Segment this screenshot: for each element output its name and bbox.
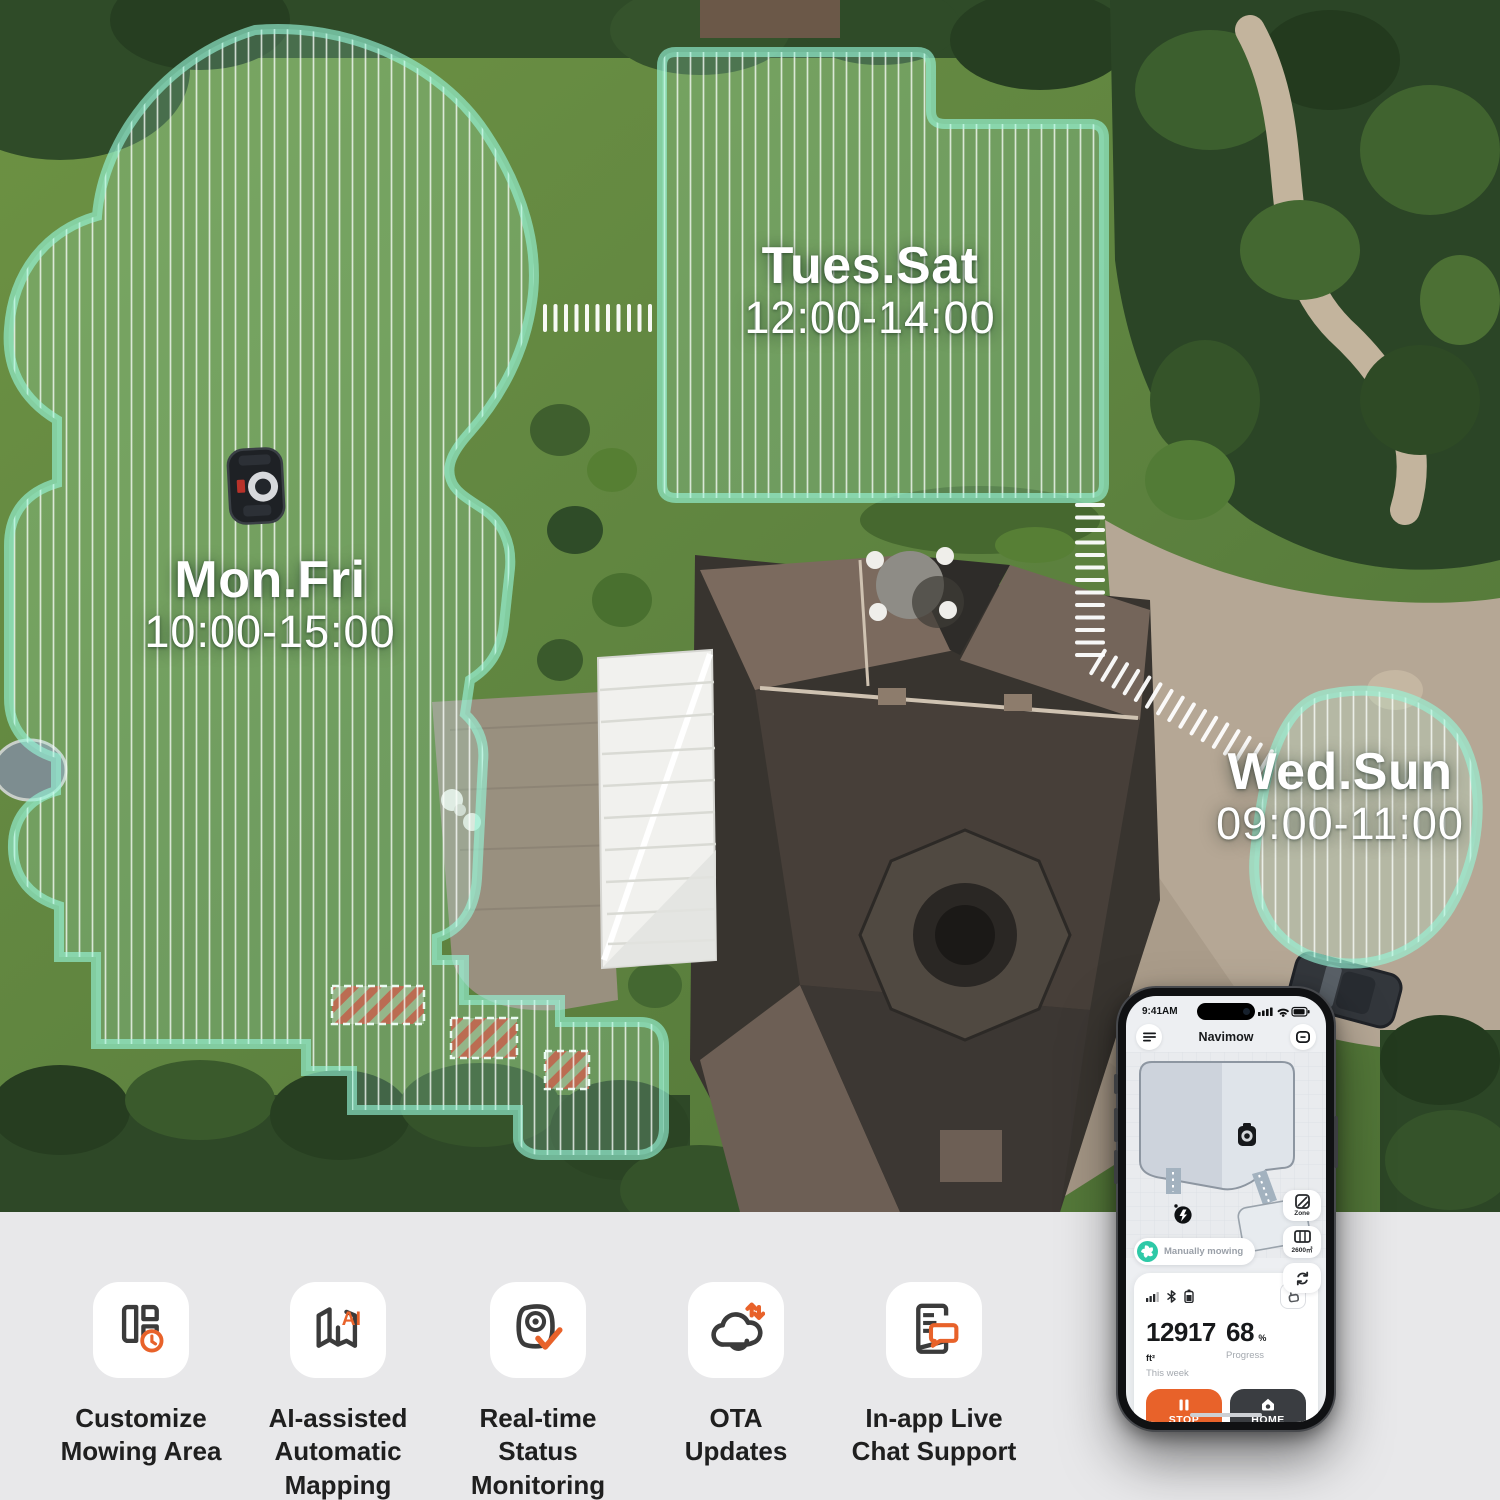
- feature-label: In-app Live Chat Support: [822, 1402, 1046, 1469]
- feature-label: Real-time Status Monitoring: [426, 1402, 650, 1500]
- feature-ota-updates: OTA Updates: [624, 1282, 848, 1469]
- progress-label: Progress: [1226, 1350, 1306, 1361]
- navimow-spinner-icon: [1137, 1241, 1158, 1262]
- stats-row: 12917 ft² This week 68 % Progress: [1146, 1317, 1306, 1379]
- wifi-icon: [1279, 1010, 1288, 1014]
- cloud-arrows-icon: [707, 1301, 765, 1359]
- hamburger-icon: [1143, 1032, 1156, 1042]
- status-card: 12917 ft² This week 68 % Progress: [1134, 1273, 1318, 1422]
- bluetooth-icon: [1167, 1290, 1176, 1303]
- status-time: 9:41AM: [1142, 1006, 1178, 1017]
- phone-mockup: 9:41AM: [1118, 988, 1334, 1430]
- dynamic-island: [1197, 1003, 1255, 1020]
- home-indicator: [1190, 1413, 1262, 1417]
- app-header: Navimow: [1126, 1020, 1326, 1050]
- message-icon: [1296, 1031, 1310, 1043]
- home-button[interactable]: HOME: [1230, 1389, 1306, 1422]
- app-map[interactable]: Zone 2600㎡: [1126, 1052, 1326, 1258]
- feature-label: OTA Updates: [624, 1402, 848, 1469]
- zones-clock-icon: [112, 1301, 170, 1359]
- stop-button[interactable]: STOP: [1146, 1389, 1222, 1422]
- rotate-icon: [1295, 1271, 1310, 1286]
- trees-right: [1110, 0, 1500, 570]
- progress-stat: 68 % Progress: [1226, 1317, 1306, 1379]
- status-icons: [1258, 1005, 1310, 1017]
- feature-label: AI-assisted Automatic Mapping: [226, 1402, 450, 1500]
- feature-tile: [688, 1282, 784, 1378]
- feature-ai-assisted-automatic-mapping: AI AI-assisted Automatic Mapping: [226, 1282, 450, 1500]
- feature-in-app-live-chat-support: In-app Live Chat Support: [822, 1282, 1046, 1469]
- map-ai-icon: AI: [309, 1301, 367, 1359]
- battery-icon: [1184, 1289, 1194, 1303]
- pause-icon: [1179, 1399, 1189, 1411]
- feature-tile: [886, 1282, 982, 1378]
- phone-volume-down: [1114, 1150, 1118, 1184]
- phone-volume-up: [1114, 1108, 1118, 1142]
- page: Mon.Fri 10:00-15:00 Tues.Sat 12:00-14:00…: [0, 0, 1500, 1500]
- robot-mower: [227, 448, 285, 525]
- area-unit: ft²: [1146, 1353, 1155, 1363]
- progress-value: 68: [1226, 1317, 1254, 1347]
- zone-button[interactable]: Zone: [1283, 1190, 1321, 1221]
- area-stat: 12917 ft² This week: [1146, 1317, 1226, 1379]
- zone-wed-sun: [1254, 691, 1477, 964]
- app-title: Navimow: [1199, 1030, 1254, 1044]
- zone-button-label: Zone: [1294, 1210, 1310, 1217]
- menu-button[interactable]: [1136, 1024, 1162, 1050]
- feature-label: Customize Mowing Area: [29, 1402, 253, 1469]
- battery-icon: [1292, 1008, 1310, 1017]
- feature-customize-mowing-area: Customize Mowing Area: [29, 1282, 253, 1469]
- area-value: 12917: [1146, 1317, 1216, 1347]
- phone-mute-switch: [1114, 1074, 1118, 1094]
- connectivity-row: [1146, 1283, 1306, 1309]
- feature-tile: [93, 1282, 189, 1378]
- wifi-dot: [1282, 1014, 1285, 1017]
- camera-dot: [1243, 1008, 1250, 1015]
- feature-tile: [490, 1282, 586, 1378]
- app-screen: 9:41AM: [1126, 996, 1326, 1422]
- area-label: This week: [1146, 1368, 1226, 1379]
- home-icon: [1261, 1398, 1275, 1411]
- zone-icon: [1295, 1194, 1310, 1209]
- chat-button[interactable]: [1290, 1024, 1316, 1050]
- robot-check-icon: [509, 1301, 567, 1359]
- cellular-icon: [1258, 1008, 1273, 1017]
- svg-text:AI: AI: [342, 1309, 361, 1330]
- charging-dock-icon: [1238, 1123, 1256, 1146]
- signal-bars-icon: [1146, 1291, 1159, 1302]
- feature-real-time-status-monitoring: Real-time Status Monitoring: [426, 1282, 650, 1500]
- feature-tile: AI: [290, 1282, 386, 1378]
- mowing-status-pill[interactable]: Manually mowing: [1134, 1238, 1255, 1265]
- status-row: Manually mowing: [1126, 1238, 1326, 1265]
- action-buttons: STOP HOME: [1146, 1389, 1306, 1422]
- mowing-status-text: Manually mowing: [1164, 1246, 1243, 1257]
- phone-power-button: [1334, 1116, 1338, 1168]
- progress-unit: %: [1258, 1333, 1266, 1343]
- garden-table: [866, 547, 964, 628]
- doc-chat-icon: [905, 1301, 963, 1359]
- recenter-button[interactable]: [1283, 1263, 1321, 1293]
